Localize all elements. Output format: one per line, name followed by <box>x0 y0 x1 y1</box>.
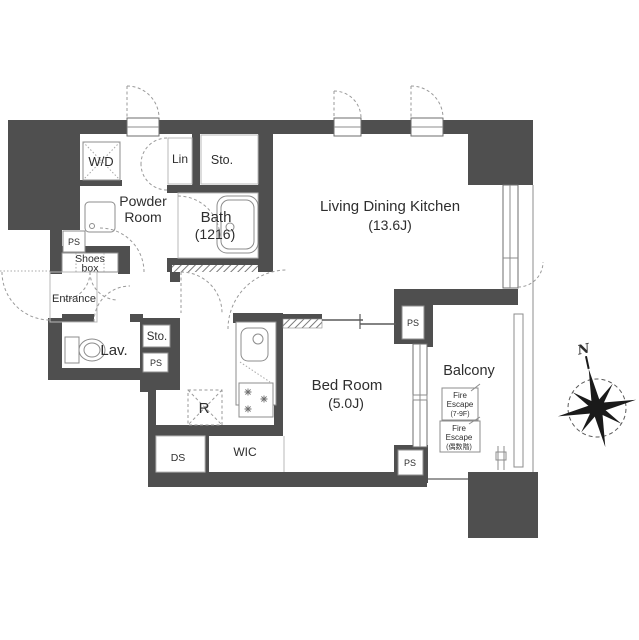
ldk-size-label: (13.6J) <box>368 217 412 233</box>
wall-segment <box>420 289 518 305</box>
linen-bifold-door-swing <box>141 138 167 164</box>
wall-segment <box>283 314 322 319</box>
window-casement-swing <box>334 91 361 118</box>
bedroom-label: Bed Room <box>312 377 383 394</box>
fire-escape-lower-line1: Fire <box>452 424 466 433</box>
wall-segment-bottom-right-block <box>468 472 538 538</box>
refrigerator-label: R <box>199 400 210 417</box>
floor-plan-canvas: W/D Lin Sto. Powder Room Bath (1216) Liv… <box>0 0 639 640</box>
kitchen-sink <box>241 328 268 361</box>
floor-plan-drawing: W/D Lin Sto. Powder Room Bath (1216) Liv… <box>0 0 639 640</box>
wall-segment <box>48 318 62 370</box>
storage-top-label: Sto. <box>211 153 233 167</box>
ldk-balcony-door-swing <box>518 262 543 287</box>
stove-burner-icon <box>245 389 252 396</box>
wall-segment <box>48 368 143 380</box>
wall-segment <box>148 472 427 487</box>
wall-segment-core-block <box>8 120 80 230</box>
bath-label: Bath <box>201 209 232 226</box>
wall-segment <box>167 185 273 193</box>
toilet-tank <box>65 337 79 363</box>
wall-segment-top-right-block <box>468 120 533 185</box>
fire-escape-lower-line3: (偶数階) <box>446 442 472 451</box>
bath-size-label: (1216) <box>195 226 235 242</box>
fire-escape-upper-line1: Fire <box>453 391 467 400</box>
stove <box>239 383 273 417</box>
fire-escape-upper-line3: (7-9F) <box>450 411 469 418</box>
compass-north-needle <box>586 356 589 369</box>
fire-escape-lower-line2: Escape <box>446 433 473 442</box>
duct-space-label: DS <box>171 452 186 464</box>
entrance-label: Entrance <box>52 293 96 305</box>
wall-segment <box>148 390 156 473</box>
wall-segment <box>80 180 122 186</box>
powder-room-label-line1: Powder <box>119 193 167 209</box>
hatch-strip-bath <box>172 265 258 272</box>
compass-rose: N <box>544 334 639 455</box>
bedroom-size-label: (5.0J) <box>328 395 364 411</box>
ldk-label: Living Dining Kitchen <box>320 198 460 215</box>
washer-dryer-label: W/D <box>88 154 113 169</box>
linen-label: Lin <box>172 152 188 166</box>
entrance-door-swing <box>2 272 50 320</box>
wall-segment <box>205 436 209 473</box>
compass-north-label: N <box>575 341 592 359</box>
pipe-space-label-4: PS <box>404 458 416 468</box>
hatch-strip-bedroom <box>283 319 322 328</box>
wic-label: WIC <box>233 445 257 459</box>
pipe-space-label-2: PS <box>150 358 162 368</box>
pipe-space-label-1: PS <box>68 237 80 247</box>
window-casement-swing <box>411 86 443 118</box>
wall-segment <box>140 378 156 392</box>
stove-burner-icon <box>245 406 252 413</box>
hall-ldk-door-swing <box>181 272 222 313</box>
wall-segment <box>258 134 273 272</box>
shoes-box-label-line2: box <box>82 263 100 275</box>
wall-segment <box>50 228 62 274</box>
wall-segment <box>118 246 130 274</box>
lavatory-door-swing <box>94 286 130 322</box>
wall-segment <box>155 425 283 436</box>
lavatory-label: Lav. <box>100 342 127 359</box>
balcony-railing-panel <box>514 314 523 467</box>
powder-room-label-line2: Room <box>124 209 161 225</box>
storage-hall-label: Sto. <box>147 331 167 343</box>
window-casement-swing <box>127 86 159 118</box>
fire-escape-upper-line2: Escape <box>447 400 474 409</box>
wall-segment <box>62 314 94 322</box>
wall-segment <box>192 134 200 193</box>
linen-bifold-door-swing <box>141 164 167 190</box>
balcony-label: Balcony <box>443 363 495 379</box>
stove-burner-icon <box>261 396 268 403</box>
pipe-space-label-3: PS <box>407 318 419 328</box>
